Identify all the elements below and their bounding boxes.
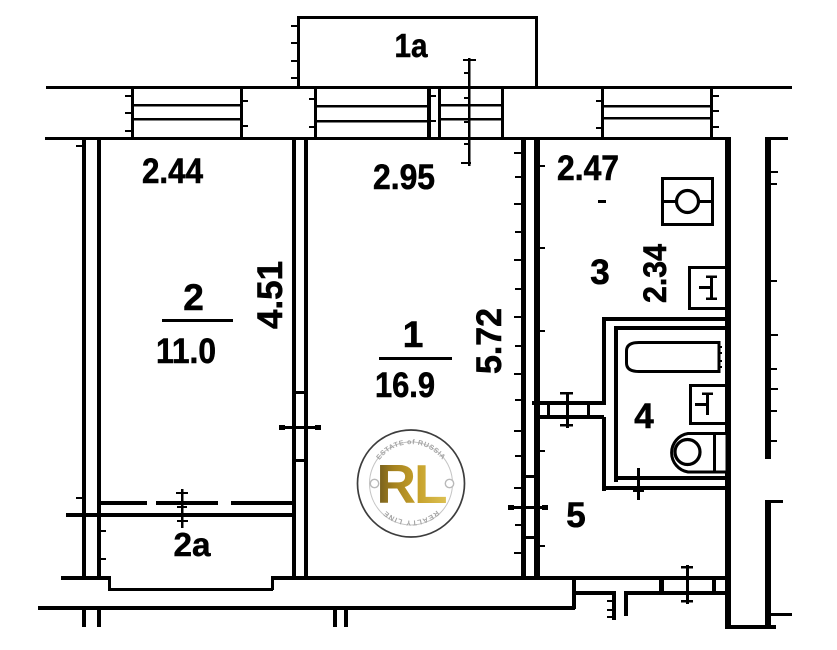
svg-text:4: 4 [634, 397, 654, 436]
svg-text:2.95: 2.95 [373, 158, 435, 197]
svg-text:11.0: 11.0 [156, 332, 216, 371]
svg-text:3: 3 [590, 253, 609, 292]
svg-text:16.9: 16.9 [375, 366, 435, 405]
svg-text:2.44: 2.44 [142, 152, 203, 191]
svg-text:1a: 1a [395, 27, 429, 64]
svg-text:1: 1 [403, 314, 424, 355]
svg-text:5: 5 [566, 496, 585, 535]
svg-text:RL: RL [376, 453, 446, 515]
svg-text:2: 2 [183, 277, 204, 318]
svg-text:4.51: 4.51 [251, 261, 290, 329]
svg-text:2.47: 2.47 [557, 149, 619, 188]
svg-text:5.72: 5.72 [470, 308, 509, 374]
svg-text:2a: 2a [174, 526, 212, 563]
svg-text:2.34: 2.34 [637, 244, 673, 303]
